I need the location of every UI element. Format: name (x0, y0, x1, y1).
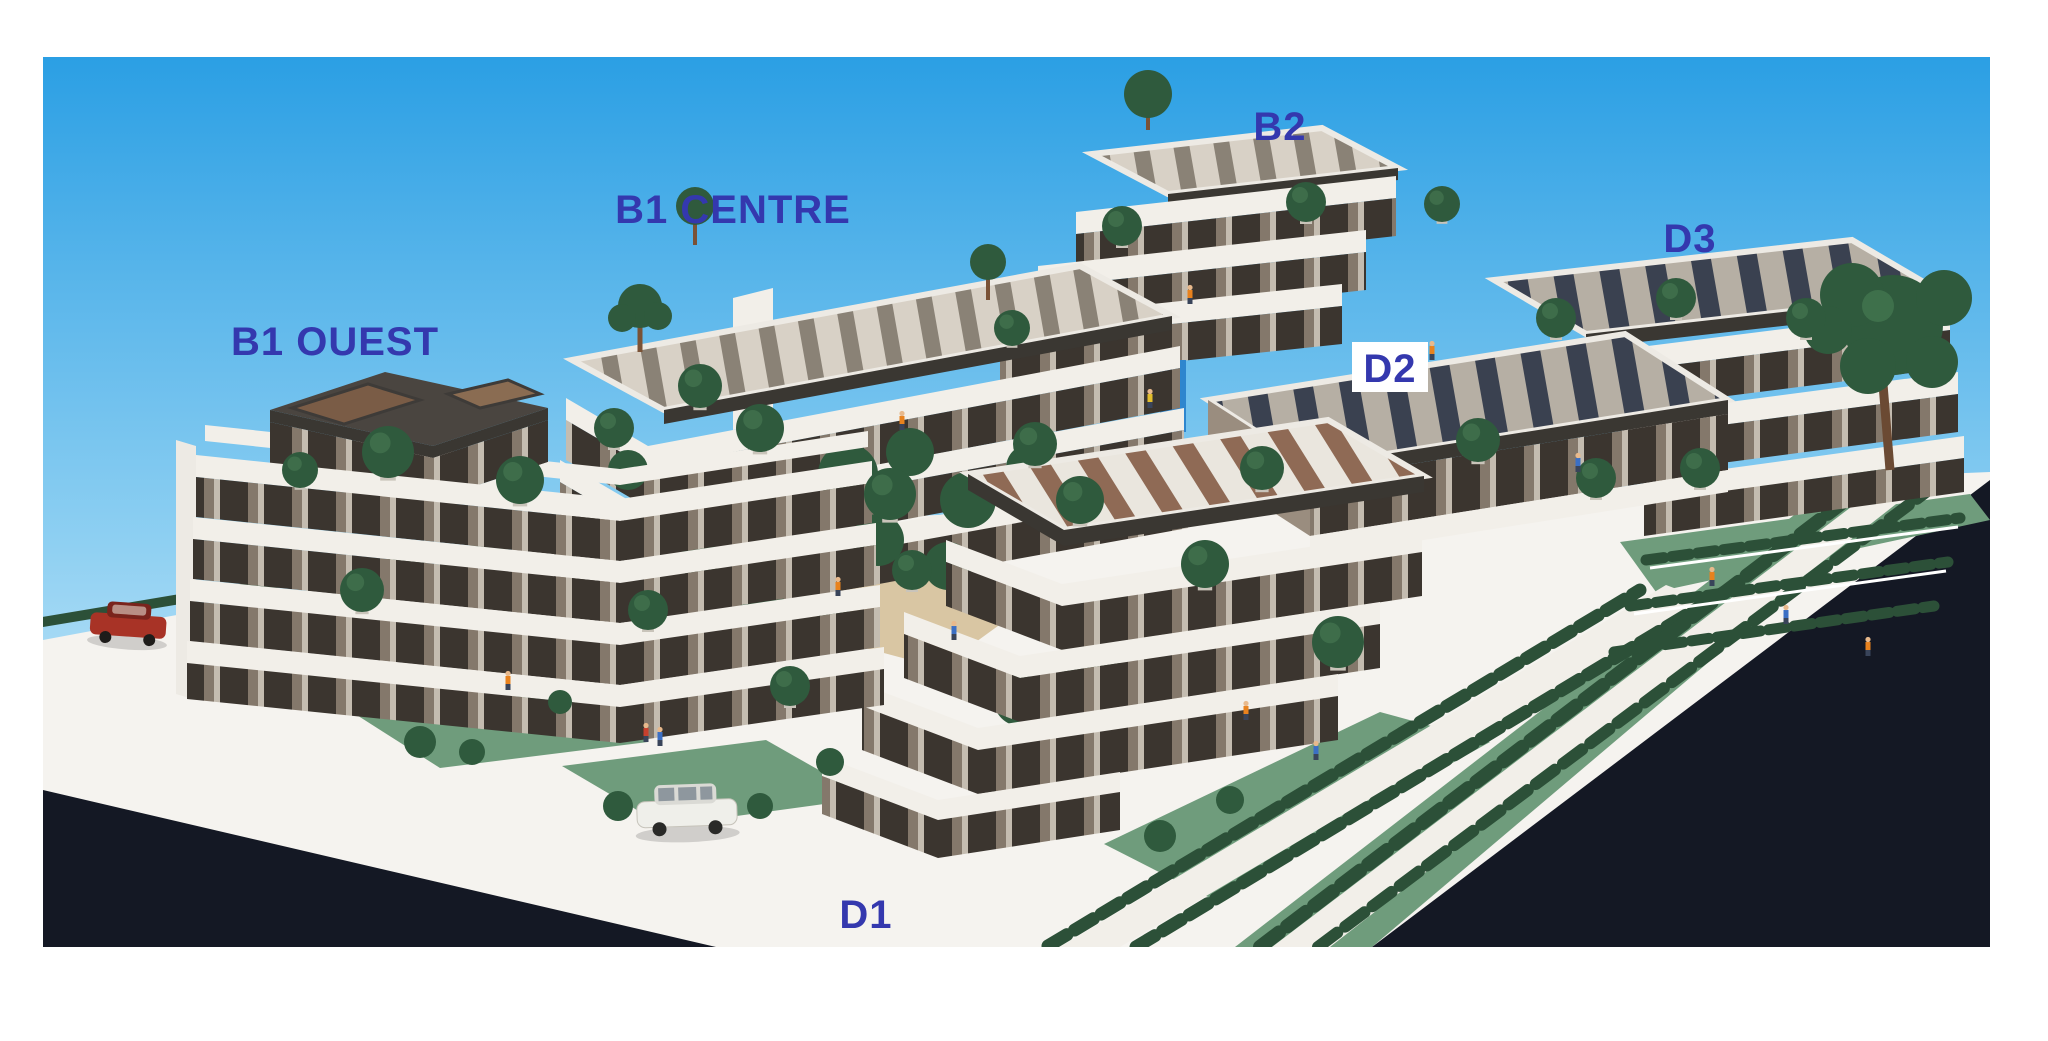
shrub (1216, 786, 1244, 814)
shrub (404, 726, 436, 758)
label-d1: D1 (839, 893, 892, 937)
figure (505, 671, 510, 690)
shrub (747, 793, 773, 819)
car-window (700, 786, 712, 799)
label-b1-centre: B1 CENTRE (615, 188, 851, 232)
tree-canopy (1916, 270, 1972, 326)
figure (1783, 605, 1788, 624)
tree-canopy (1906, 336, 1958, 388)
shrub (816, 748, 844, 776)
tree-canopy (1124, 70, 1172, 118)
label-d3: D3 (1663, 217, 1716, 261)
figure (1429, 341, 1434, 360)
tree-canopy (970, 244, 1006, 280)
figure (657, 727, 662, 746)
shrub (459, 739, 485, 765)
car-window (658, 788, 674, 802)
tree-canopy (644, 302, 672, 330)
figure (1313, 741, 1318, 760)
figure (1575, 453, 1580, 472)
model-photo: B1 OUEST B1 CENTRE B2 D3 D2 D1 (0, 0, 2048, 1041)
label-b2: B2 (1253, 105, 1306, 149)
car-window (678, 787, 696, 801)
figure (1243, 701, 1248, 720)
shrub (1144, 820, 1176, 852)
figure (899, 411, 904, 430)
shrub (548, 690, 572, 714)
label-b1-ouest: B1 OUEST (231, 320, 439, 364)
figure (1147, 389, 1152, 408)
figure (1865, 637, 1870, 656)
figure (835, 577, 840, 596)
figure (1187, 285, 1192, 304)
figure (643, 723, 648, 742)
tree-highlight (1862, 290, 1894, 322)
figure (951, 621, 956, 640)
tree-canopy (608, 304, 636, 332)
scanned-photo-page: B1 OUEST B1 CENTRE B2 D3 D2 D1 (0, 0, 2048, 1041)
tree-canopy (1840, 338, 1896, 394)
label-d2: D2 (1363, 347, 1416, 391)
shrub (603, 791, 633, 821)
figure (1709, 567, 1714, 586)
